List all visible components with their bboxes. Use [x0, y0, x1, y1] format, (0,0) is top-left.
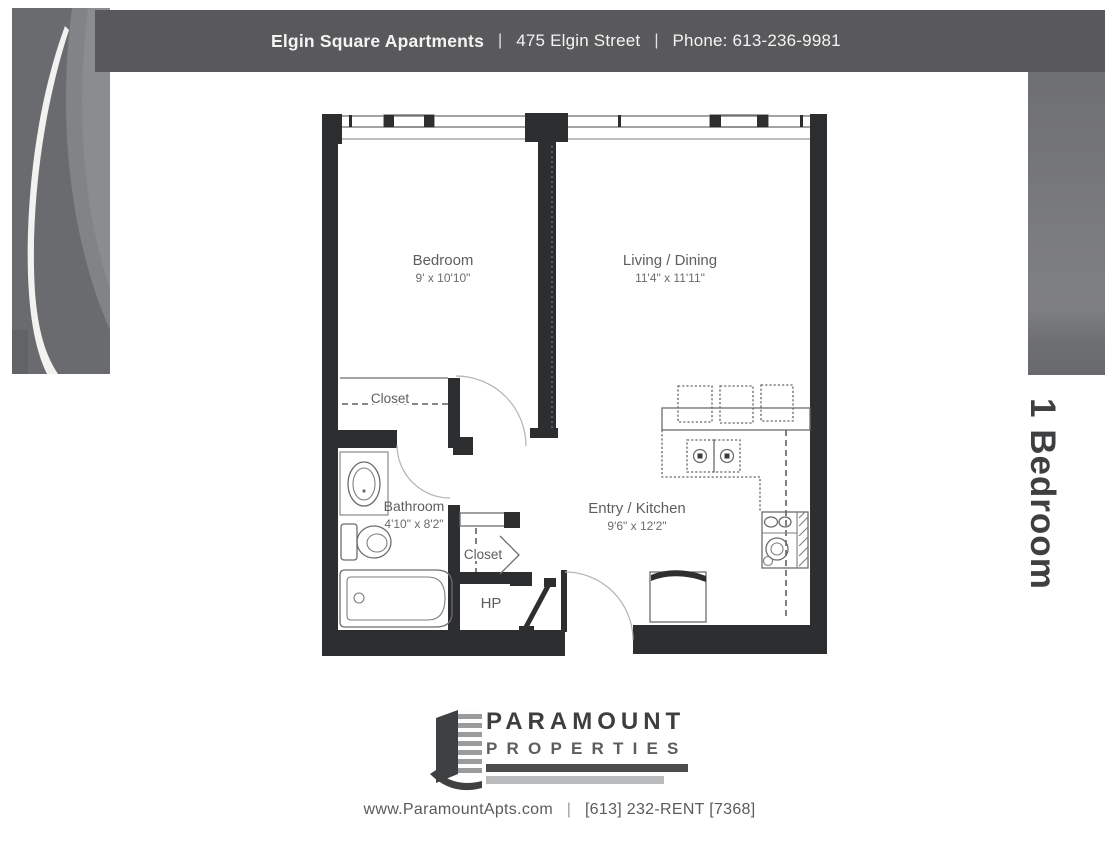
floor-plan-drawing: Bedroom 9' x 10'10" Living / Dining 11'4…: [318, 112, 832, 658]
building-icon: [430, 704, 486, 794]
bedroom-dims: 9' x 10'10": [416, 271, 471, 285]
header-separator: |: [498, 32, 502, 50]
stove: [687, 440, 740, 472]
entry-door: [561, 570, 633, 640]
floorplan-page: Elgin Square Apartments | 475 Elgin Stre…: [0, 0, 1119, 845]
living-window: [710, 115, 768, 127]
building-name: Elgin Square Apartments: [271, 31, 484, 52]
bedroom-closet-label: Closet: [371, 391, 410, 406]
hall-closet: [460, 512, 520, 574]
plan-type-label: 1 Bedroom: [1020, 398, 1062, 613]
window-wall: [338, 115, 810, 139]
hp-door: [519, 578, 556, 635]
walls: [322, 113, 827, 656]
header-bar: Elgin Square Apartments | 475 Elgin Stre…: [95, 10, 1105, 72]
heat-pump-label: HP: [481, 595, 502, 612]
bathroom-label: Bathroom: [384, 498, 445, 514]
bathroom-door-arc: [397, 445, 450, 498]
bathroom-dims: 4'10" x 8'2": [384, 517, 443, 531]
hall-closet-label: Closet: [464, 547, 503, 562]
bedroom-window: [384, 115, 434, 127]
bedroom-label: Bedroom: [413, 252, 474, 269]
right-decorative-band: [1028, 72, 1105, 375]
logo-text: PARAMOUNT PROPERTIES: [486, 708, 688, 784]
logo-light-bar: [486, 776, 664, 784]
bathtub: [340, 570, 452, 627]
phone-number: Phone: 613-236-9981: [673, 31, 841, 51]
logo-dark-bar: [486, 764, 688, 772]
bathroom-vanity-sink: [340, 452, 388, 515]
living-label: Living / Dining: [623, 252, 717, 269]
living-dims: 11'4" x 11'11": [635, 271, 705, 285]
kitchen-sink-unit: [762, 512, 808, 568]
header-separator: |: [654, 32, 658, 50]
footer-website: www.ParamountApts.com: [363, 801, 552, 818]
entry-kitchen-label: Entry / Kitchen: [588, 500, 686, 517]
paramount-logo: PARAMOUNT PROPERTIES: [430, 700, 710, 796]
footer-separator: |: [567, 801, 571, 818]
street-address: 475 Elgin Street: [516, 31, 640, 51]
bar-counter: [662, 408, 810, 430]
bar-stools: [678, 385, 793, 423]
footer: www.ParamountApts.com | [613] 232-RENT […: [0, 801, 1119, 819]
footer-phone: [613] 232-RENT [7368]: [585, 801, 756, 818]
kitchen-counter: [662, 430, 786, 620]
logo-subname: PROPERTIES: [486, 739, 688, 759]
logo-name: PARAMOUNT: [486, 708, 688, 736]
bedroom-door-arc: [456, 376, 526, 446]
entry-kitchen-dims: 9'6" x 12'2": [607, 519, 666, 533]
fridge: [650, 570, 706, 622]
